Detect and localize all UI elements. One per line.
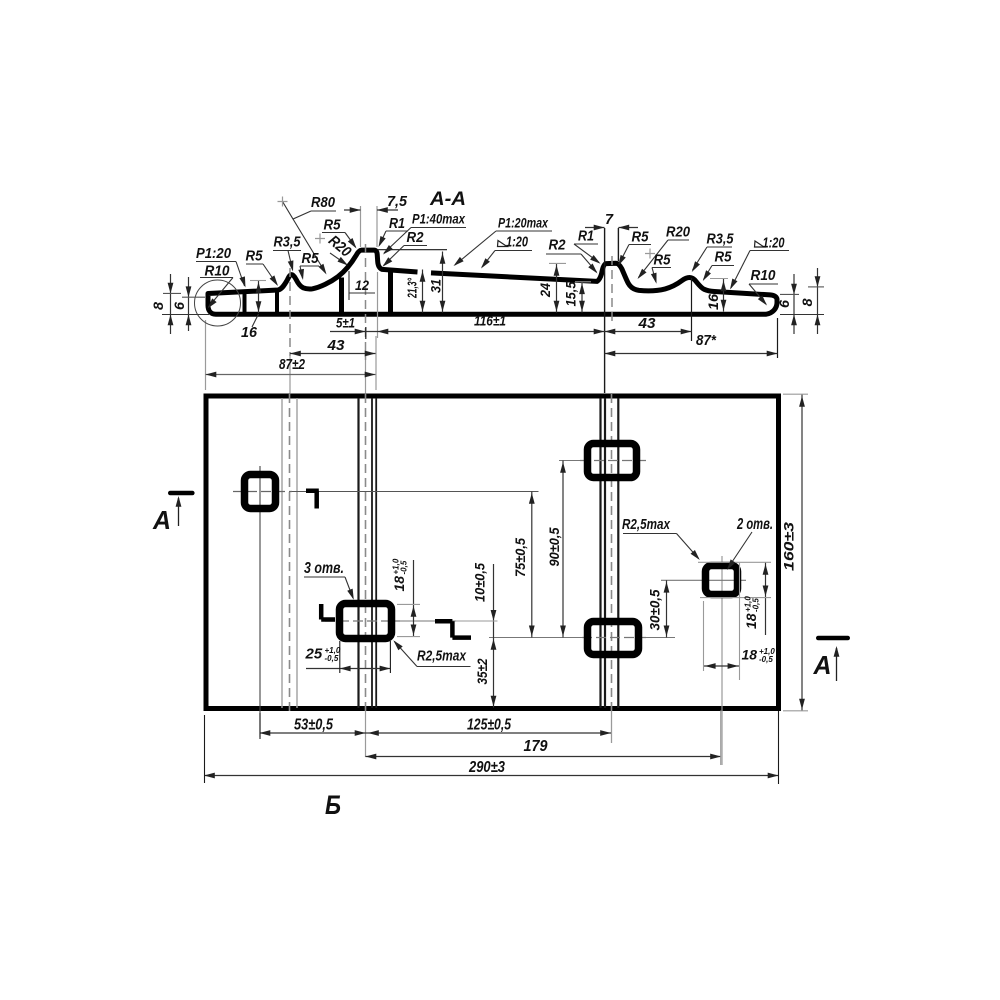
svg-text:7,5: 7,5 (387, 193, 408, 210)
svg-text:R2,5max: R2,5max (622, 516, 671, 533)
svg-text:А: А (152, 505, 171, 535)
svg-text:2 отв.: 2 отв. (736, 516, 773, 533)
svg-text:87*: 87* (696, 332, 717, 349)
svg-text:6: 6 (171, 302, 187, 310)
svg-text:15,5: 15,5 (563, 281, 579, 306)
svg-text:87±2: 87±2 (279, 356, 306, 373)
svg-text:А: А (813, 650, 832, 680)
svg-text:R2: R2 (407, 229, 425, 246)
svg-text:5±1: 5±1 (336, 315, 355, 331)
svg-text:35±2: 35±2 (474, 658, 490, 684)
svg-text:R5: R5 (654, 252, 672, 269)
svg-text:-0,5: -0,5 (325, 654, 339, 663)
svg-text:30±0,5: 30±0,5 (647, 589, 663, 630)
svg-text:R2,5max: R2,5max (417, 648, 467, 665)
svg-text:43: 43 (326, 337, 345, 354)
svg-text:18: 18 (391, 576, 407, 592)
svg-text:-0,5: -0,5 (752, 598, 761, 612)
svg-text:R5: R5 (324, 217, 342, 234)
svg-text:3 отв.: 3 отв. (304, 560, 344, 577)
svg-text:24: 24 (537, 283, 553, 298)
svg-text:12: 12 (355, 277, 369, 293)
svg-text:8: 8 (799, 298, 815, 306)
svg-text:125±0,5: 125±0,5 (467, 717, 511, 734)
svg-text:R20: R20 (666, 224, 691, 241)
svg-text:75±0,5: 75±0,5 (512, 538, 528, 577)
svg-text:Р1:40max: Р1:40max (412, 211, 466, 227)
svg-text:R3,5: R3,5 (707, 231, 735, 248)
svg-text:53±0,5: 53±0,5 (294, 717, 333, 734)
svg-text:R3,5: R3,5 (274, 234, 302, 251)
svg-text:R5: R5 (632, 229, 650, 246)
svg-text:R80: R80 (311, 194, 336, 211)
svg-text:90±0,5: 90±0,5 (546, 527, 562, 566)
svg-text:290±3: 290±3 (468, 759, 505, 776)
svg-text:16: 16 (241, 324, 258, 341)
svg-text:R5: R5 (246, 248, 264, 265)
svg-text:18: 18 (742, 647, 758, 663)
svg-text:-0,5: -0,5 (759, 655, 773, 664)
svg-text:1:20: 1:20 (506, 235, 528, 251)
svg-text:16: 16 (705, 294, 721, 310)
svg-text:31: 31 (428, 279, 444, 293)
svg-text:21,3°: 21,3° (406, 277, 420, 298)
svg-text:Б: Б (325, 790, 341, 820)
svg-text:R2: R2 (549, 237, 567, 254)
svg-text:179: 179 (524, 738, 548, 755)
svg-text:R5: R5 (715, 249, 733, 266)
svg-text:R1: R1 (578, 228, 594, 245)
svg-text:7: 7 (605, 211, 614, 228)
svg-text:R5: R5 (302, 250, 320, 267)
svg-text:10±0,5: 10±0,5 (472, 563, 488, 602)
svg-text:6: 6 (776, 300, 792, 308)
svg-text:43: 43 (637, 315, 656, 332)
svg-text:25: 25 (305, 646, 323, 663)
svg-text:A-A: A-A (429, 188, 466, 210)
svg-text:1:20: 1:20 (763, 236, 785, 252)
svg-text:8: 8 (150, 302, 166, 310)
svg-text:Р1:20: Р1:20 (196, 245, 232, 262)
svg-text:Р1:20max: Р1:20max (498, 215, 549, 231)
svg-text:R10: R10 (751, 267, 777, 284)
svg-text:116±1: 116±1 (474, 313, 506, 329)
svg-text:-0,5: -0,5 (400, 560, 409, 574)
svg-text:160±3: 160±3 (781, 522, 797, 571)
svg-text:18: 18 (743, 613, 759, 629)
svg-text:R1: R1 (389, 215, 405, 232)
